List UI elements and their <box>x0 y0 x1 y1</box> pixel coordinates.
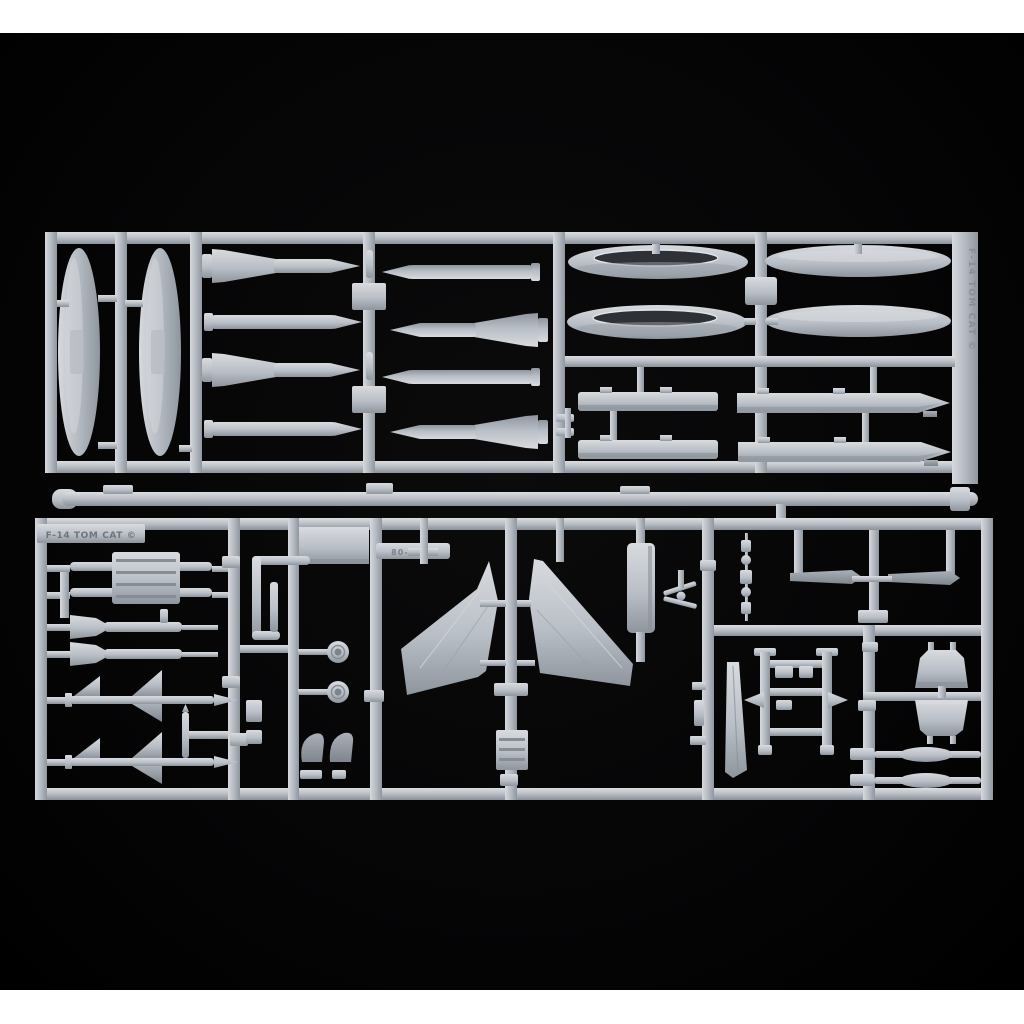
main-wheel-2 <box>298 681 349 703</box>
letterbox-top <box>0 0 1024 33</box>
aileron-blade-left <box>790 530 862 584</box>
windscreen-frame <box>915 642 968 688</box>
outer-wing-panel-right <box>517 518 633 686</box>
launcher-rails-group <box>47 552 228 618</box>
finned-missile-2 <box>202 353 360 387</box>
wing-pylon-flat-2 <box>578 411 718 459</box>
fuel-tank-slot-2 <box>567 305 756 339</box>
aileron-blade-right <box>888 530 960 585</box>
fuel-tank-plain-1 <box>765 244 951 277</box>
drop-tank-half-left <box>57 248 117 456</box>
thin-rail-fairing-2 <box>850 773 981 788</box>
sprue-photo: F-14 TOM CAT © <box>0 33 1024 990</box>
tall-fin-panel <box>627 518 655 662</box>
ventral-fin <box>725 662 747 778</box>
plain-missile-4 <box>382 368 540 386</box>
plain-missile-3 <box>382 263 540 281</box>
finned-missile-1 <box>202 249 360 283</box>
bottom-sprue-emboss-text: F-14 TOM CAT © <box>46 531 137 541</box>
plain-missile-1 <box>204 313 362 331</box>
top-sprue-emboss-text: F-14 TOM CAT © <box>966 248 976 351</box>
intake-lip-parts <box>300 733 353 779</box>
chain-links-part <box>740 533 752 621</box>
h-frame-seat-rails <box>744 648 848 755</box>
drop-tank-half-right <box>125 248 192 456</box>
letterbox-bottom <box>0 990 1024 1024</box>
sidewinder-missile-2 <box>47 732 238 784</box>
fuel-tank-slot-1 <box>568 244 748 279</box>
wing-pylon-pointed-1 <box>737 367 950 417</box>
thin-rail-fairing-1 <box>850 747 981 762</box>
emboss-name-plate: F-14 TOM CAT © <box>37 524 145 543</box>
main-wheel-1 <box>298 641 349 663</box>
loose-runner-bar <box>52 483 978 522</box>
spade-tail-missile-1 <box>47 609 218 639</box>
bottom-sprue: F-14 TOM CAT © <box>35 518 993 800</box>
blade-center-hanger <box>852 530 892 623</box>
wing-pylon-pointed-2 <box>738 413 951 466</box>
spade-tail-missile-2 <box>47 642 218 666</box>
finned-missile-4 <box>390 415 548 449</box>
sidewinder-missile-1 <box>47 670 238 722</box>
wing-pylon-flat-1 <box>578 367 718 411</box>
top-sprue: F-14 TOM CAT © <box>45 232 978 484</box>
plain-missile-2 <box>204 420 362 438</box>
finned-missile-3 <box>390 313 548 347</box>
propeller-part <box>663 570 697 609</box>
fuel-tank-plain-2 <box>765 305 951 337</box>
